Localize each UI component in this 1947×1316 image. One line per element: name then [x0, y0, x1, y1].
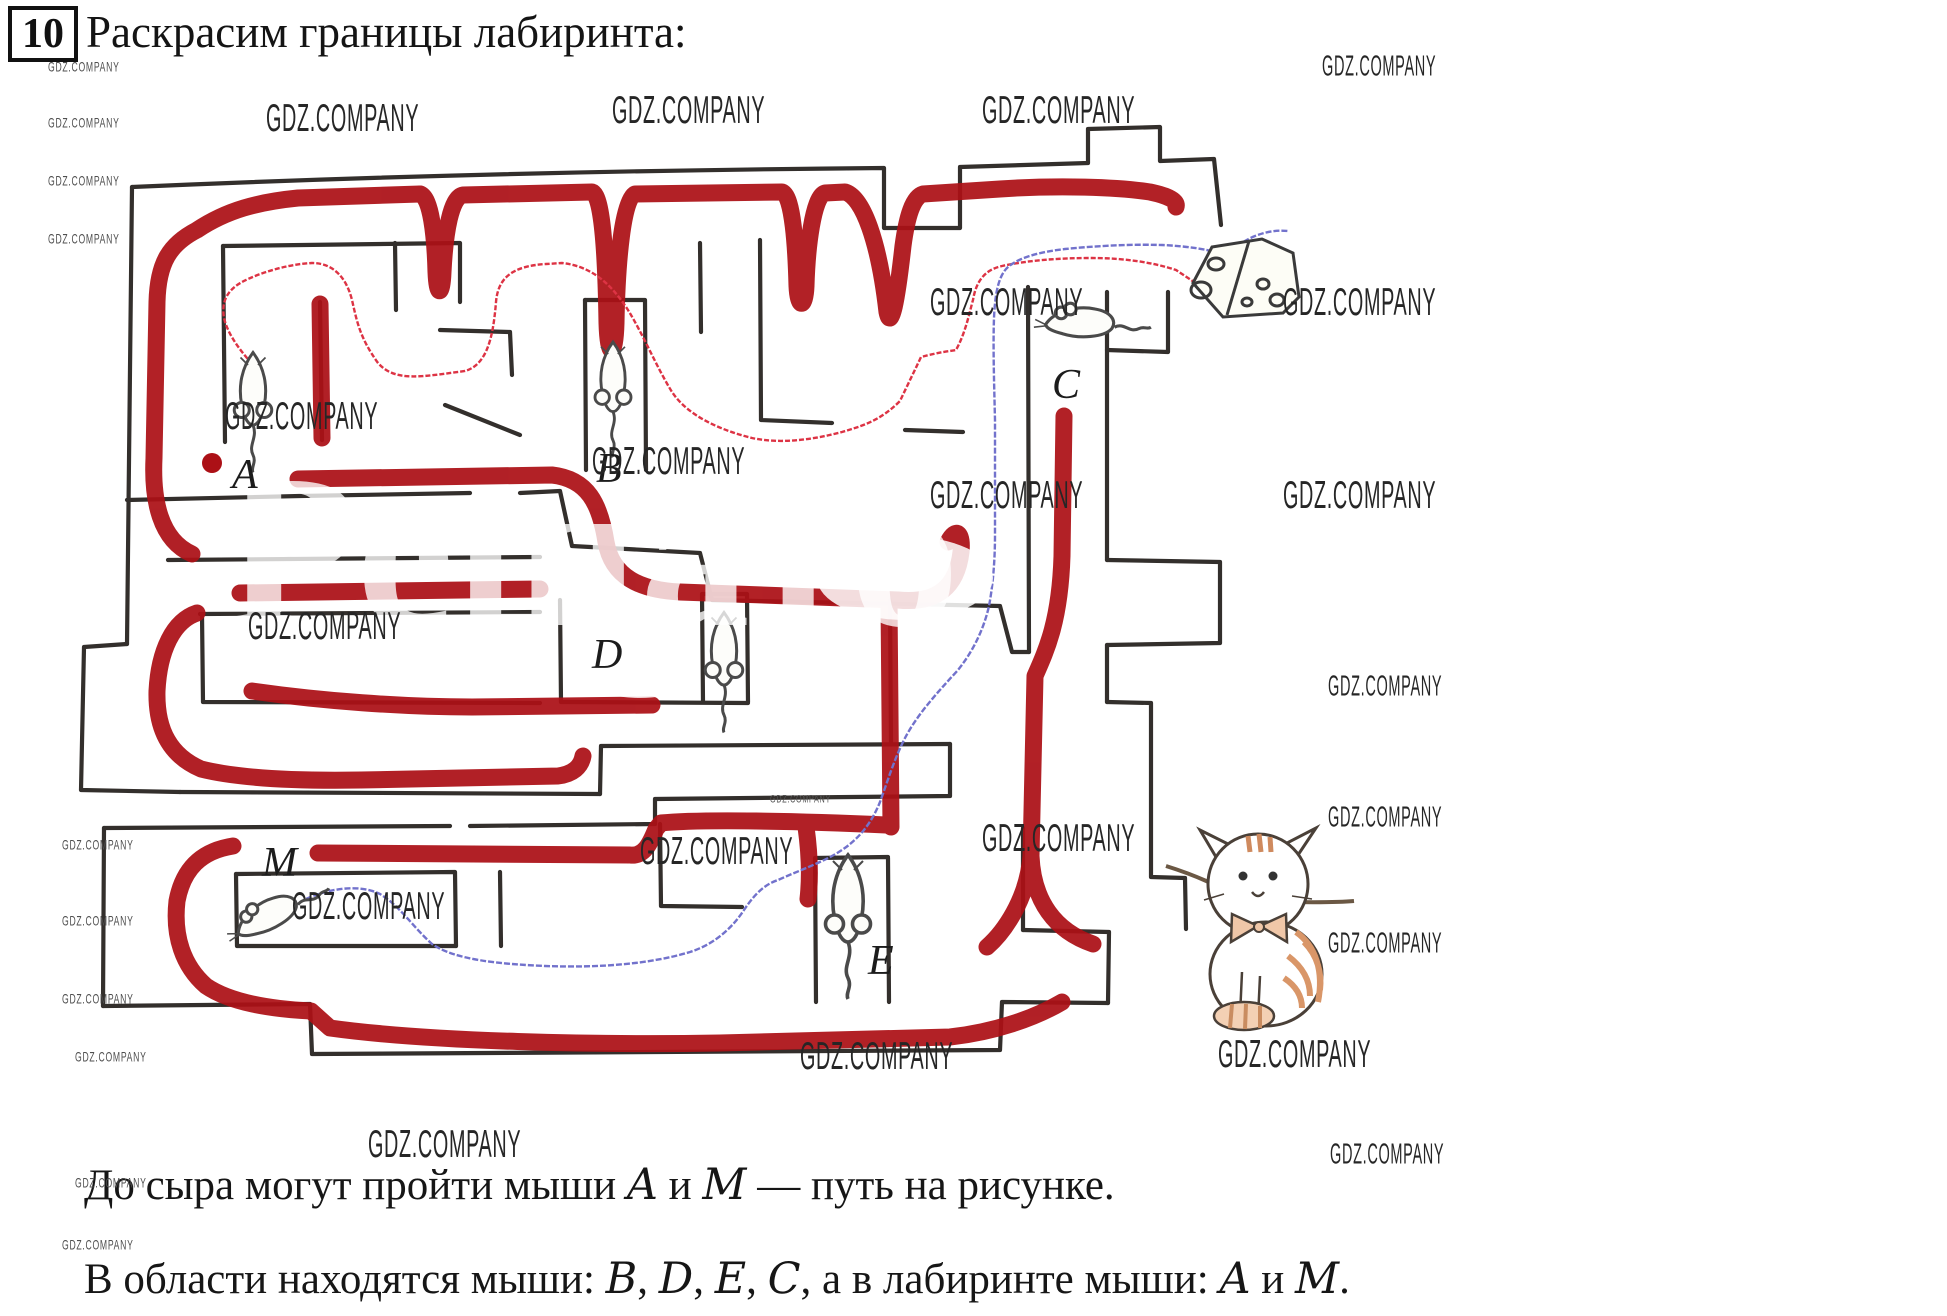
watermark: GDZ.COMPANY: [800, 1038, 953, 1077]
watermark: GDZ.COMPANY: [248, 608, 401, 647]
watermark: GDZ.COMPANY: [225, 398, 378, 437]
watermark: GDZ.COMPANY: [1283, 284, 1436, 323]
red-dot-near-a: [202, 453, 222, 473]
mouse-e-icon: [826, 855, 871, 999]
label-e: E: [867, 938, 894, 984]
label-d: D: [591, 632, 622, 678]
label-a: A: [229, 452, 258, 498]
problem-number-box: 10: [8, 6, 78, 62]
watermark: GDZ.COMPANY: [62, 992, 134, 1006]
watermark: GDZ.COMPANY: [982, 820, 1135, 859]
watermark: GDZ.COMPANY: [292, 888, 445, 927]
ghost-watermark: Решато: [225, 429, 1388, 773]
watermark: GDZ.COMPANY: [1322, 52, 1436, 81]
label-c: C: [1052, 362, 1081, 408]
watermark: GDZ.COMPANY: [62, 1238, 134, 1252]
answer-line-2: В области находятся мыши: B, D, E, C, а …: [84, 1254, 1350, 1304]
watermark: GDZ.COMPANY: [1328, 929, 1442, 958]
watermark: GDZ.COMPANY: [266, 100, 419, 139]
watermark: GDZ.COMPANY: [640, 833, 793, 872]
label-m: M: [261, 840, 299, 886]
watermark: GDZ.COMPANY: [62, 914, 134, 928]
watermark: GDZ.COMPANY: [930, 284, 1083, 323]
watermark: GDZ.COMPANY: [1218, 1036, 1371, 1075]
watermark: GDZ.COMPANY: [62, 838, 134, 852]
watermark: GDZ.COMPANY: [770, 795, 831, 806]
watermark: GDZ.COMPANY: [368, 1126, 521, 1165]
watermark: GDZ.COMPANY: [75, 1050, 147, 1064]
watermark: GDZ.COMPANY: [48, 232, 120, 246]
watermark: GDZ.COMPANY: [1328, 672, 1442, 701]
watermark: GDZ.COMPANY: [48, 116, 120, 130]
watermark: GDZ.COMPANY: [612, 92, 765, 131]
watermark: GDZ.COMPANY: [930, 477, 1083, 516]
page-title: Раскрасим границы лабиринта:: [86, 6, 687, 58]
answer-line-1: До сыра могут пройти мыши A и M — путь н…: [84, 1160, 1115, 1210]
watermark: GDZ.COMPANY: [48, 174, 120, 188]
watermark: GDZ.COMPANY: [48, 60, 120, 74]
maze-figure: Решато A B C D E M: [0, 0, 1947, 1316]
watermark: GDZ.COMPANY: [1283, 477, 1436, 516]
watermark: GDZ.COMPANY: [75, 1176, 147, 1190]
watermark: GDZ.COMPANY: [982, 92, 1135, 131]
problem-number: 10: [22, 10, 64, 58]
workbook-page: Решато A B C D E M 10 Раскрасим границы …: [0, 0, 1947, 1316]
cat-icon: [1166, 828, 1354, 1030]
watermark: GDZ.COMPANY: [1328, 803, 1442, 832]
watermark: GDZ.COMPANY: [1330, 1140, 1444, 1169]
watermark: GDZ.COMPANY: [592, 443, 745, 482]
